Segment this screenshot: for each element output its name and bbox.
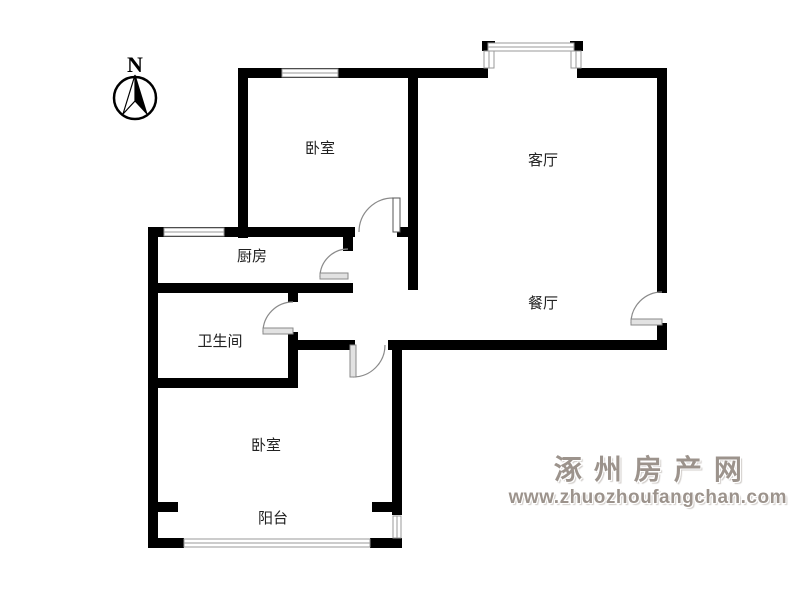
door-symbol — [631, 292, 662, 325]
door-leaf — [393, 198, 400, 232]
room-label-dining-room: 餐厅 — [528, 295, 558, 312]
watermark: 涿州房产网 www.zhuozhoufangchan.com — [509, 455, 787, 509]
floor-plan-page: N 卧室 客厅 厨房 卫生间 餐厅 卧室 阳台 涿州房产网 www.zhuozh… — [0, 0, 800, 600]
watermark-site-name: 涿州房产网 — [509, 455, 787, 486]
watermark-site-url: www.zhuozhoufangchan.com — [509, 488, 787, 509]
door-leaf — [350, 345, 356, 377]
wall-segment — [412, 68, 488, 78]
room-label-kitchen: 厨房 — [237, 248, 267, 265]
window-symbol — [164, 228, 224, 236]
door-symbol — [359, 198, 400, 232]
wall-segment — [288, 291, 298, 302]
wall-segment — [577, 68, 667, 78]
door-leaf — [320, 273, 348, 279]
north-compass: N — [114, 52, 156, 119]
wall-segment — [298, 340, 355, 350]
room-label-balcony: 阳台 — [258, 510, 288, 527]
door-symbol — [263, 302, 293, 334]
room-labels: 卧室 客厅 厨房 卫生间 餐厅 卧室 阳台 — [197, 140, 558, 527]
floor-plan-svg: N 卧室 客厅 厨房 卫生间 餐厅 卧室 阳台 — [0, 0, 800, 600]
door-arc — [353, 345, 385, 377]
door-arc — [359, 198, 393, 232]
room-label-bedroom-top: 卧室 — [305, 140, 335, 157]
window-symbol — [393, 516, 401, 538]
wall-segment — [148, 283, 353, 293]
wall-segment — [148, 538, 184, 548]
wall-segment — [148, 502, 178, 512]
wall-segment — [408, 68, 418, 290]
wall-segment — [392, 340, 402, 515]
wall-segment — [238, 68, 248, 238]
door-arc — [631, 292, 662, 323]
room-label-living-room: 客厅 — [528, 152, 558, 169]
room-label-bathroom: 卫生间 — [197, 333, 242, 350]
window-symbol — [282, 69, 338, 77]
room-label-bedroom-bottom: 卧室 — [251, 437, 281, 454]
door-leaf — [631, 319, 662, 325]
wall-segment — [370, 538, 402, 548]
window-symbol — [184, 539, 370, 547]
door-leaf — [263, 328, 293, 334]
wall-segment — [148, 378, 298, 388]
wall-segment — [388, 340, 667, 350]
north-label: N — [127, 52, 143, 77]
door-symbol — [350, 345, 385, 377]
door-symbol — [320, 249, 348, 279]
wall-segment — [372, 502, 402, 512]
wall-segment — [657, 68, 667, 293]
window-symbol — [484, 43, 581, 68]
